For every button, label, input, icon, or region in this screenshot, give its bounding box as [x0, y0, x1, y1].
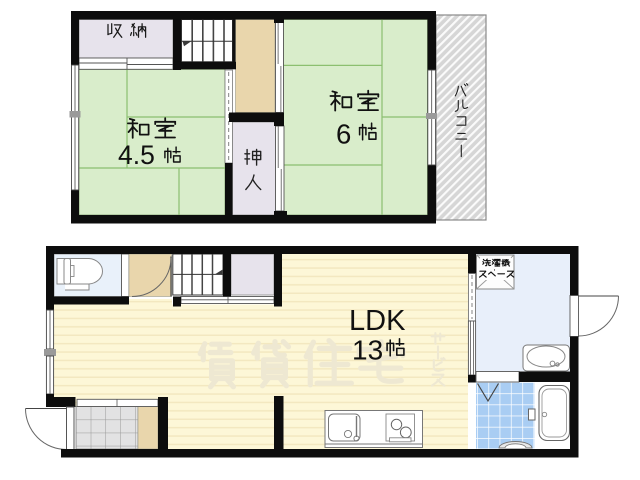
- svg-text:13: 13: [352, 335, 383, 366]
- svg-text:LDK: LDK: [349, 305, 406, 337]
- svg-text:4.5: 4.5: [118, 140, 155, 170]
- svg-text:6: 6: [336, 119, 351, 150]
